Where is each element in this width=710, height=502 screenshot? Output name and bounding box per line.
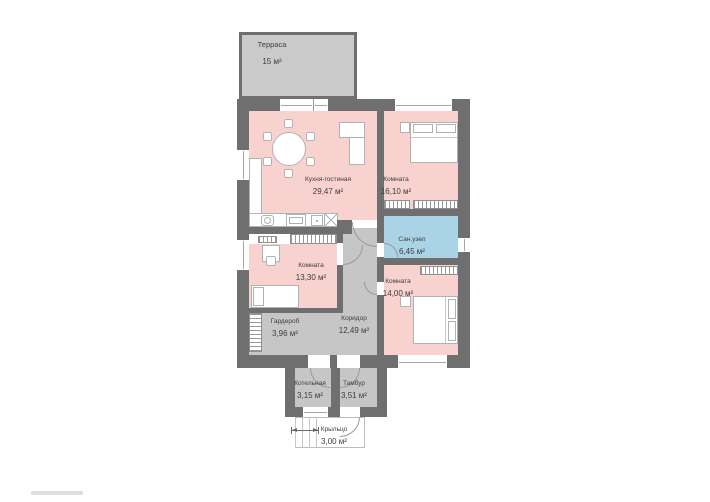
bedroom-left-window [237, 240, 249, 270]
wall-boiler-vestibule [331, 368, 340, 407]
room-area: 3,51 м² [341, 391, 367, 400]
bedroom-left-label: Комната 13,30 м² [296, 262, 326, 282]
pillow [253, 287, 264, 306]
dresser [420, 266, 458, 275]
window-sill [404, 368, 441, 373]
desk-chair [266, 256, 276, 266]
room-name: Тамбур [341, 380, 367, 387]
room-area: 3,00 м² [321, 437, 348, 446]
room-area: 3,96 м² [271, 329, 300, 338]
pillow [448, 299, 456, 319]
wall-east [458, 99, 470, 368]
bathroom-label: Сан.узел 6,45 м² [398, 236, 425, 256]
room-name: Коридор [339, 315, 369, 322]
room-area: 15 м² [258, 57, 287, 66]
closet [290, 234, 337, 244]
dimension-arrow [292, 430, 318, 431]
fridge-icon [324, 213, 338, 227]
door-opening-porch [340, 407, 360, 417]
dresser [413, 200, 458, 209]
door-opening-vestibule [337, 355, 360, 368]
bedroom-top-right-label: Комната 16,10 м² [381, 176, 411, 196]
room-area: 3,15 м² [294, 391, 325, 400]
pillow [436, 124, 456, 133]
room-name: Гардероб [271, 318, 300, 325]
chair [306, 157, 315, 166]
pillow [448, 321, 456, 341]
bathroom-window [458, 238, 470, 252]
pillow [413, 124, 433, 133]
dimension-tick [291, 427, 292, 434]
blanket-line [445, 297, 446, 343]
blanket-line [411, 137, 457, 138]
terrace-label: Терраса 15 м² [258, 41, 287, 66]
kitchen-window [237, 150, 249, 180]
wall-corridor-west [337, 227, 343, 313]
room-area: 13,30 м² [296, 273, 326, 282]
door-opening-boiler [308, 355, 330, 368]
room-name: Сан.узел [398, 236, 425, 243]
floor-plan: Терраса 15 м² Кухня-гостиная 29,47 м² Ко… [0, 0, 710, 502]
dimension-tick [318, 427, 319, 434]
chair [263, 157, 272, 166]
bedroom-bottom-right-label: Комната 14,00 м² [383, 278, 413, 298]
boiler-room-label: Котельная 3,15 м² [294, 380, 325, 400]
wall-extension-east [377, 368, 387, 407]
sofa [339, 122, 365, 138]
chair [284, 169, 293, 178]
sink-bowl-icon [264, 217, 271, 224]
room-name: Комната [296, 262, 326, 269]
room-name: Комната [381, 176, 411, 183]
wall-bathroom-bedroom [377, 258, 458, 265]
room-area: 14,00 м² [383, 289, 413, 298]
appliance-dot-icon [316, 220, 318, 222]
corridor-label: Коридор 12,49 м² [339, 315, 369, 335]
room-name: Терраса [258, 41, 287, 49]
wall-bedroom-bathroom [377, 209, 458, 216]
wardrobe-closet [249, 313, 262, 352]
vestibule-label: Тамбур 3,51 м² [341, 380, 367, 400]
wall-center-vertical [377, 111, 384, 355]
wardrobe-label: Гардероб 3,96 м² [271, 318, 300, 338]
bathroom-window-sill [470, 239, 474, 251]
room-name: Котельная [294, 380, 325, 387]
dresser [384, 200, 410, 209]
wall-kitchen-south [249, 227, 343, 234]
nightstand [400, 122, 410, 133]
terrace-door-window [280, 99, 313, 111]
room-area: 16,10 м² [381, 187, 411, 196]
room-name: Кухня-гостиная [305, 176, 351, 183]
kitchen-living-label: Кухня-гостиная 29,47 м² [305, 176, 351, 196]
room-area: 29,47 м² [305, 187, 351, 196]
chair [284, 119, 293, 128]
room-name: Крыльцо [321, 426, 348, 433]
door-opening-bathroom [377, 243, 384, 257]
bedroom-bottom-right-window [398, 355, 447, 368]
stove-inner-icon [289, 217, 303, 224]
chair [263, 132, 272, 141]
sofa-chaise [349, 137, 365, 165]
dining-table [272, 132, 306, 166]
room-name: Комната [383, 278, 413, 285]
wall-bedroom-wardrobe [249, 308, 343, 313]
terrace-window [313, 99, 328, 111]
wall-extension-south [285, 407, 387, 417]
room-area: 6,45 м² [398, 247, 425, 256]
bedroom-top-right-window [395, 99, 452, 111]
tv-cabinet [249, 158, 262, 218]
shelf [258, 236, 277, 243]
watermark [31, 491, 83, 495]
chair [306, 132, 315, 141]
boiler-window [303, 407, 328, 417]
wall-west [237, 99, 249, 368]
porch-label: Крыльцо 3,00 м² [321, 426, 348, 446]
room-area: 12,49 м² [339, 326, 369, 335]
